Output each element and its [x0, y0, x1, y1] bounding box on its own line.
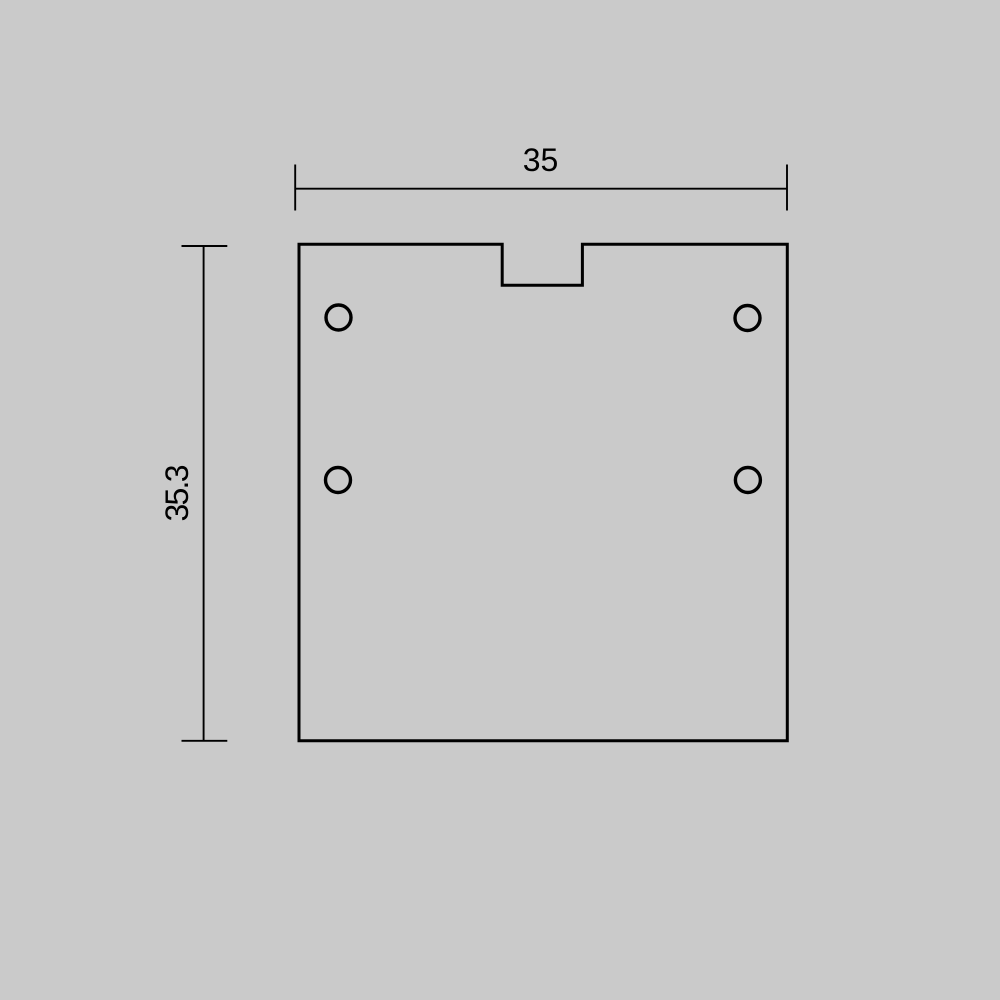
svg-text:35: 35	[523, 142, 559, 178]
svg-text:35.3: 35.3	[159, 465, 195, 522]
